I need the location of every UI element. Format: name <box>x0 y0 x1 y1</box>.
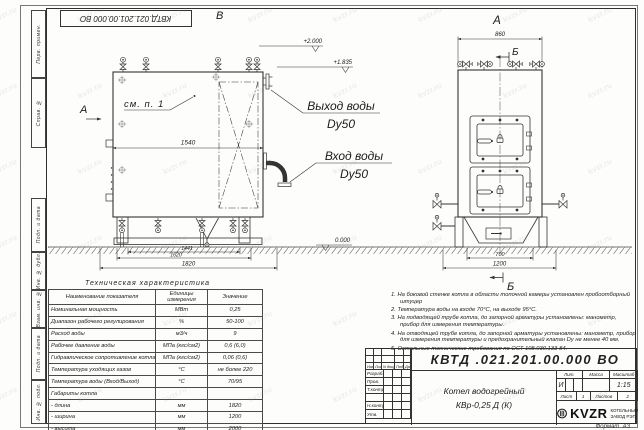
tech-header-row: Наименование показателя Единицы измерени… <box>49 290 263 305</box>
doc-number: КВТД .021.201.00.000 ВО <box>411 349 638 371</box>
frame-cell-inv-dubl: Инв. № дубл. <box>31 252 46 290</box>
note-1: 1. На боковой стенке котла в области топ… <box>391 292 637 306</box>
tech-row: Габариты котла <box>49 388 263 400</box>
tech-table-title: Техническая характеристика <box>48 280 247 287</box>
frame-cell-podp-data-2: Подп. и дата <box>31 328 46 380</box>
company-name: КОТЕЛЬНЫЙ ЗАВОД РЭП <box>610 408 638 419</box>
tech-table: Техническая характеристика Наименование … <box>48 280 247 430</box>
product-name: Котел водогрейный КВр-0,25 Д (К) <box>411 371 556 425</box>
frame-cell-podp-data-1: Подп. и дата <box>31 198 46 252</box>
format-label: Формат А3 <box>500 424 644 430</box>
frame-cell-inv-podl: Инв. № подл. <box>31 380 46 424</box>
tech-row: Номинальная мощностьМВт0,25 <box>49 305 263 317</box>
tech-row: Диапазон рабочего регулирования%50-100 <box>49 316 263 328</box>
tech-row: Рабочее давление водыМПа (кгс/см2)0,6 (6… <box>49 340 263 352</box>
title-block: КВТД .021.201.00.000 ВО Изм. Лист N доку… <box>365 348 637 424</box>
scale-value: 1:15 <box>610 379 638 392</box>
tech-table-grid: Наименование показателя Единицы измерени… <box>48 289 263 430</box>
tech-row: - высотамм2000 <box>49 423 263 430</box>
company-logo: KVZR КОТЕЛЬНЫЙ ЗАВОД РЭП <box>557 401 638 426</box>
frame-cell-sprav-no: Справ. № <box>31 78 46 148</box>
top-stamp: КВТД.021.201.00.000 ВО <box>60 10 192 27</box>
kvzr-emblem-icon <box>557 406 567 421</box>
frame-cell-vzam-inv: Взам. инв. № <box>31 290 46 328</box>
tech-row: - ширинамм1200 <box>49 412 263 424</box>
mass-value <box>583 379 611 392</box>
lit-value: И <box>557 379 566 392</box>
note-2: 2. Температура воды на входе 70°С, на вы… <box>391 307 637 314</box>
tech-row: Расход водым3/ч9 <box>49 328 263 340</box>
tech-row: Температура воды (Вход/Выход)°С70/95 <box>49 376 263 388</box>
tech-row: Гидравлическое сопротивление котлаМПа (к… <box>49 352 263 364</box>
revision-header-row: Изм. Лист N докум. Подп. Дата <box>366 363 411 370</box>
frame-cell-perv-primen: Перв. примен. <box>31 10 46 78</box>
sheet-number: 1 <box>577 392 591 401</box>
logo-text: KVZR <box>570 406 607 421</box>
drawing-sheet: Перв. примен. Справ. № Подп. и дата Инв.… <box>0 0 644 430</box>
tech-row: Температура уходящих газов°Сне более 220 <box>49 364 263 376</box>
title-block-right: Лит. Масса Масштаб И 1:15 Лист 1 Листов … <box>556 371 638 425</box>
note-4: 4. На отводящей трубе котла, до запорной… <box>391 331 637 345</box>
tech-row: - длинамм1820 <box>49 400 263 412</box>
title-block-signatures: Изм. Лист N докум. Подп. Дата Разраб. Пр… <box>366 349 411 425</box>
technical-notes: 1. На боковой стенке котла в области топ… <box>391 292 637 354</box>
note-3: 3. На подводящей трубе котла, до запорно… <box>391 315 637 329</box>
sheets-total: 2 <box>618 392 638 401</box>
